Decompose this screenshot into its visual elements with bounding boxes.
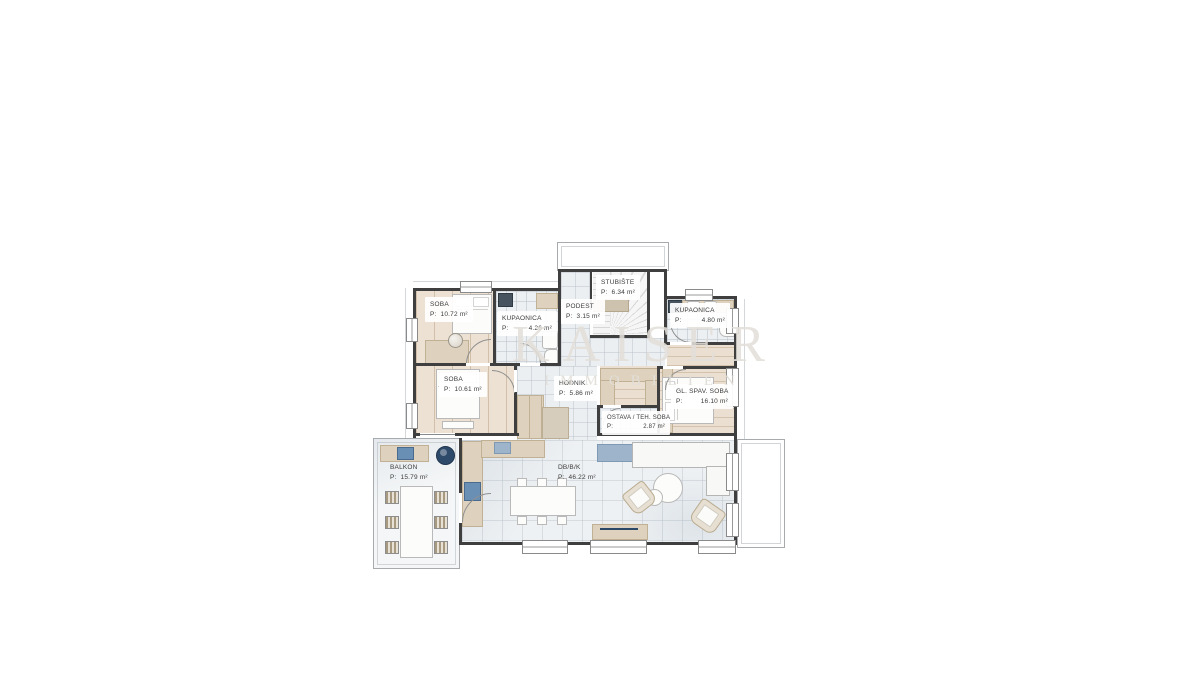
area-prefix: P:	[566, 312, 573, 322]
area-prefix: P:	[676, 397, 683, 407]
dresser	[425, 340, 469, 364]
wall-segment	[597, 405, 600, 436]
door-opening	[603, 405, 621, 408]
dining-chair	[537, 478, 547, 487]
wall-tv	[597, 444, 635, 462]
room-name: PODEST	[566, 302, 600, 312]
wall-segment	[664, 269, 667, 299]
sofa	[632, 442, 730, 468]
window	[406, 318, 418, 342]
window	[406, 403, 418, 429]
area-prefix: P:	[559, 389, 566, 399]
armchair-seat	[628, 486, 651, 509]
room-label-ostava: OSTAVA / TEH. SOBA P:2.87 m²	[602, 411, 670, 435]
balcony-chair	[434, 491, 448, 504]
area-prefix: P:	[502, 324, 509, 334]
dining-chair	[557, 516, 567, 525]
window	[420, 433, 455, 436]
armchair-seat	[695, 504, 719, 527]
window	[685, 289, 713, 301]
room-name: KUPAONICA	[502, 314, 552, 324]
room-label-kupaonica2: KUPAONICA P:4.80 m²	[670, 303, 730, 328]
terrace-outline	[737, 439, 785, 548]
floorplan-canvas: SOBA P:10.72 m² KUPAONICA P:4.26 m² PODE…	[0, 0, 1200, 675]
tv-sideboard	[592, 524, 648, 540]
bench	[442, 421, 474, 429]
hallway-closet	[517, 395, 544, 439]
area-value: 2.87 m²	[643, 423, 665, 432]
wall-segment	[459, 438, 462, 545]
wall-segment	[590, 335, 650, 338]
bathroom-cabinet	[536, 293, 558, 309]
area-value: 5.86 m²	[570, 389, 593, 399]
bed-pillow	[473, 297, 489, 307]
room-label-stubiste: STUBIŠTE P:6.34 m²	[596, 275, 640, 300]
balcony-sink	[397, 447, 414, 460]
dining-table	[510, 486, 576, 516]
room-name: DB/B/K	[558, 463, 596, 473]
window	[522, 540, 568, 554]
floor-hall-upper	[590, 338, 665, 366]
dining-chair	[517, 516, 527, 525]
kitchen-counter	[481, 440, 545, 458]
floor-hall-right	[667, 345, 734, 366]
wall-segment	[558, 269, 667, 272]
window	[590, 540, 647, 554]
door-opening	[459, 493, 462, 523]
area-value: 10.61 m²	[455, 385, 482, 395]
balcony-chair	[385, 491, 399, 504]
room-name: HODNIK	[559, 379, 593, 389]
door-opening	[520, 363, 540, 366]
door-opening	[514, 370, 517, 392]
wall-segment	[493, 291, 496, 363]
room-name: KUPAONICA	[675, 306, 725, 316]
dining-chair	[537, 516, 547, 525]
grill	[436, 446, 455, 465]
area-value: 4.26 m²	[529, 324, 552, 334]
door-opening	[663, 366, 683, 369]
cooktop	[494, 442, 511, 454]
wardrobe-left	[600, 380, 615, 408]
balcony-chair	[385, 541, 399, 554]
area-prefix: P:	[390, 473, 397, 483]
wall-segment	[664, 299, 667, 345]
washing-machine	[498, 293, 513, 307]
area-prefix: P:	[601, 288, 608, 298]
floor-plan: SOBA P:10.72 m² KUPAONICA P:4.26 m² PODE…	[370, 235, 800, 575]
window	[726, 503, 739, 537]
room-label-glspav: GL. SPAV. SOBA P:16.10 m²	[671, 384, 733, 409]
window	[460, 281, 492, 293]
window	[698, 540, 736, 554]
area-prefix: P:	[444, 385, 451, 395]
door-opening	[466, 363, 490, 366]
window	[726, 453, 739, 491]
area-prefix: P:	[430, 310, 437, 320]
area-prefix: P:	[607, 423, 613, 432]
room-label-soba2: SOBA P:10.61 m²	[439, 372, 487, 397]
wall-segment	[647, 272, 650, 338]
room-label-podest: PODEST P:3.15 m²	[561, 299, 605, 324]
area-value: 6.34 m²	[612, 288, 635, 298]
dome-lamp	[448, 333, 463, 348]
area-value: 4.80 m²	[702, 316, 725, 326]
room-label-soba1: SOBA P:10.72 m²	[425, 297, 473, 322]
hallway-cabinet	[542, 407, 569, 439]
door-opening	[670, 342, 692, 345]
room-name: SOBA	[444, 375, 482, 385]
area-prefix: P:	[558, 473, 565, 483]
area-value: 46.22 m²	[569, 473, 596, 483]
balcony-chair	[385, 516, 399, 529]
area-value: 10.72 m²	[441, 310, 468, 320]
balcony-table	[400, 486, 433, 558]
area-value: 15.79 m²	[401, 473, 428, 483]
room-name: OSTAVA / TEH. SOBA	[607, 414, 665, 423]
area-value: 16.10 m²	[701, 397, 728, 407]
room-label-hodnik: HODNIK P:5.86 m²	[554, 376, 598, 401]
roof-outline-inner	[561, 246, 665, 267]
overhang-line	[744, 299, 745, 440]
terrace-outline-inner	[741, 443, 781, 544]
grill-highlight	[440, 449, 447, 456]
room-label-kupaonica1: KUPAONICA P:4.26 m²	[497, 311, 557, 336]
balcony-chair	[434, 516, 448, 529]
room-name: SOBA	[430, 300, 468, 310]
roof-outline	[557, 242, 669, 271]
room-name: GL. SPAV. SOBA	[676, 387, 728, 397]
dining-chair	[517, 478, 527, 487]
balcony-chair	[434, 541, 448, 554]
room-label-dbbk: DB/B/K P:46.22 m²	[553, 460, 601, 485]
room-name: STUBIŠTE	[601, 278, 635, 288]
room-name: BALKON	[390, 463, 428, 473]
area-prefix: P:	[675, 316, 682, 326]
room-label-balkon: BALKON P:15.79 m²	[385, 460, 433, 485]
area-value: 3.15 m²	[577, 312, 600, 322]
tv	[600, 528, 638, 530]
